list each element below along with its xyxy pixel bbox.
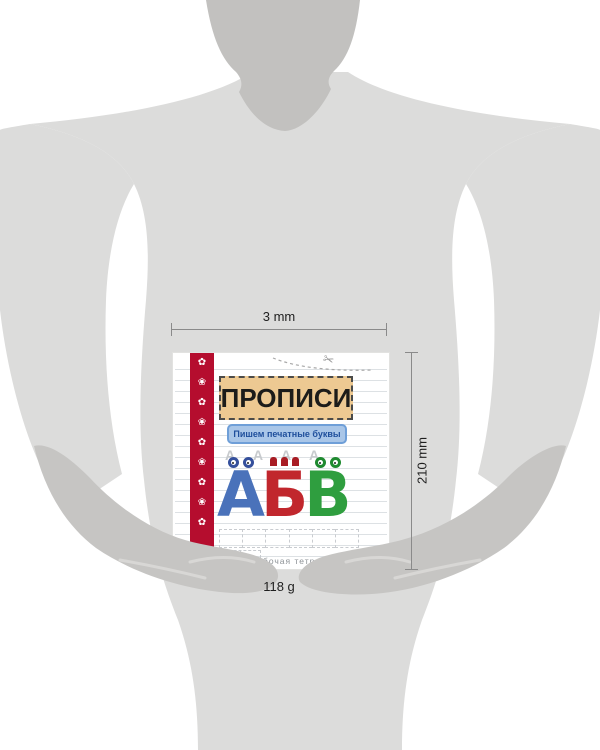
alphabet-letters: А Б В [217, 457, 348, 523]
book-title: ПРОПИСИ [219, 376, 353, 420]
height-dimension-line [411, 352, 412, 570]
width-label: 3 mm [171, 309, 387, 324]
height-label: 210 mm [414, 352, 430, 570]
letter-b: Б [261, 466, 308, 523]
product-size-comparison: ✿ ❀ ✿ ❀ ✿ ❀ ✿ ❀ ✿ ✂ ПРОПИСИ Пишем печатн… [0, 0, 600, 750]
weight-label: 118 g [229, 579, 329, 594]
letter-a-group: А [217, 457, 265, 523]
left-arm-shape [0, 124, 134, 506]
letter-v: В [304, 466, 351, 523]
width-dimension-line [171, 329, 387, 330]
head-neck-shape [206, 0, 360, 131]
letter-b-crown [270, 457, 299, 470]
width-tick-left [171, 323, 172, 336]
red-strip: ✿ ❀ ✿ ❀ ✿ ❀ ✿ ❀ ✿ [190, 353, 214, 569]
book-cover: ✿ ❀ ✿ ❀ ✿ ❀ ✿ ❀ ✿ ✂ ПРОПИСИ Пишем печатн… [172, 352, 390, 570]
letter-a-eyes [228, 457, 254, 470]
book-subtitle: Пишем печатные буквы [227, 424, 347, 444]
width-tick-right [386, 323, 387, 336]
letter-a: А [217, 466, 265, 523]
cover-footer-text: рабочая тетрадь [222, 556, 362, 566]
letter-b-group: Б [261, 457, 308, 523]
right-arm-shape [466, 124, 600, 506]
letter-v-eyes [315, 457, 341, 470]
practice-cells [219, 529, 359, 548]
letter-v-group: В [304, 457, 351, 523]
